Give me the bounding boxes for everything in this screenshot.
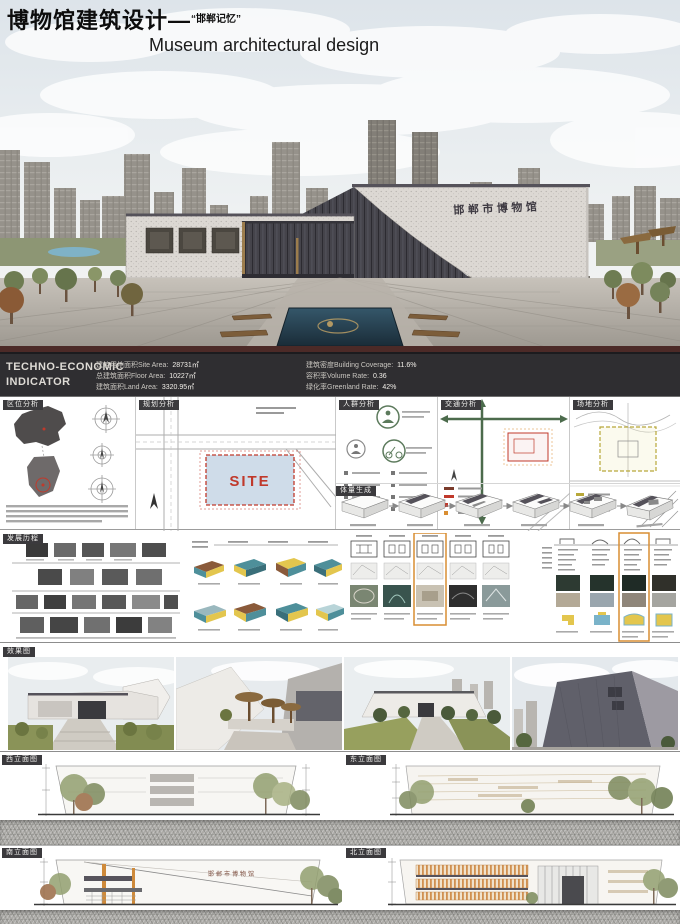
massing-step-5 — [570, 494, 616, 526]
stat-land-area: 建筑面积Land Area:3320.95㎡ — [96, 382, 199, 393]
ground-texture-band — [0, 910, 680, 924]
poster-title-block: 博物馆建筑设计—“邯郸记忆” Museum architectural desi… — [7, 10, 379, 54]
south-elevation-label: 南立面图 — [2, 848, 42, 858]
techno-economic-banner: TECHNO-ECONOMIC INDICATOR 建筑用地面积Site Are… — [0, 352, 680, 396]
render-lawn-view — [344, 657, 510, 750]
location-analysis-figure — [0, 397, 136, 531]
glass-grid — [538, 866, 598, 904]
massing-step-2 — [399, 494, 445, 526]
analysis-row: 区位分析 — [0, 396, 680, 530]
east-elevation-label: 东立面图 — [346, 755, 386, 765]
development-history-row: 发展历程 — [0, 531, 680, 643]
elevations-row-2: 南立面图 北立面图 邯郸市博物馆 — [0, 845, 680, 924]
stat-volume-rate: 容积率Volume Rate:0.36 — [306, 371, 417, 382]
stats-right: 建筑密度Building Coverage:11.6% 容积率Volume Ra… — [306, 360, 417, 394]
title-quote: “邯郸记忆” — [191, 14, 241, 25]
planning-analysis-label: 规划分析 — [139, 400, 179, 410]
massing-step-4 — [513, 494, 559, 526]
history-photo-timeline — [8, 541, 184, 641]
render-front-view — [8, 657, 174, 750]
stat-coverage: 建筑密度Building Coverage:11.6% — [306, 360, 417, 371]
north-elevation-label: 北立面图 — [346, 848, 386, 858]
lake — [48, 247, 100, 257]
site-label: SITE — [229, 473, 270, 490]
south-elevation-drawing: 邯郸市博物馆 — [26, 856, 342, 910]
stat-green-rate: 绿化率Greenland Rate:42% — [306, 382, 417, 393]
reflecting-pool — [277, 308, 403, 346]
massing-generation-strip: 体量生成 — [336, 483, 680, 532]
slat-bands — [416, 865, 528, 900]
stat-site-area: 建筑用地面积Site Area:28731㎡ — [96, 360, 199, 371]
title-zh: 博物馆建筑设计 — [7, 8, 168, 33]
footprint-diagrams — [562, 612, 672, 626]
render-corner-view — [512, 657, 678, 750]
render-walkway-view — [176, 657, 342, 750]
north-elevation-drawing — [386, 856, 678, 910]
plan-typology-study — [348, 533, 512, 641]
ground-texture-band — [0, 820, 680, 845]
presentation-board: 邯郸市博物馆 — [0, 0, 680, 924]
panel-location-analysis: 区位分析 — [0, 397, 136, 529]
stat-floor-area: 总建筑面积Floor Area:10227㎡ — [96, 371, 199, 382]
precedent-diagrams — [188, 539, 344, 639]
planning-analysis-figure: SITE — [136, 397, 336, 531]
massing-step-1 — [342, 494, 388, 526]
north-arrow — [150, 493, 158, 509]
crowd-analysis-label: 人群分析 — [339, 400, 379, 410]
massing-diagrams — [336, 484, 680, 532]
poster-title: 博物馆建筑设计—“邯郸记忆” — [7, 10, 379, 32]
poster-subtitle-en: Museum architectural design — [149, 36, 379, 54]
site-analysis-label: 场地分析 — [573, 400, 613, 410]
west-elevation-drawing — [28, 762, 328, 820]
facade-artwork-panels — [146, 228, 239, 253]
west-elevation-label: 西立面图 — [2, 755, 42, 765]
location-analysis-label: 区位分析 — [3, 400, 43, 410]
renders-label: 效果图 — [3, 647, 35, 657]
development-label: 发展历程 — [3, 534, 43, 544]
panel-planning-analysis: 规划分析 SITE — [136, 397, 336, 529]
entrance-glazing — [242, 221, 354, 278]
plaza — [0, 278, 680, 352]
elevations-row-1: 西立面图 东立面图 — [0, 753, 680, 845]
massing-step-6 — [626, 494, 674, 528]
east-elevation-drawing — [388, 762, 676, 820]
traffic-analysis-label: 交通分析 — [441, 400, 481, 410]
roof-form-study — [540, 531, 680, 643]
stats-left: 建筑用地面积Site Area:28731㎡ 总建筑面积Floor Area:1… — [96, 360, 199, 394]
diagram-items — [194, 558, 344, 623]
title-dash: — — [168, 8, 191, 33]
renderings-row: 效果图 — [0, 644, 680, 752]
elevation-sign-text: 邯郸市博物馆 — [208, 870, 256, 878]
massing-label: 体量生成 — [336, 486, 376, 496]
massing-step-3 — [456, 494, 502, 526]
